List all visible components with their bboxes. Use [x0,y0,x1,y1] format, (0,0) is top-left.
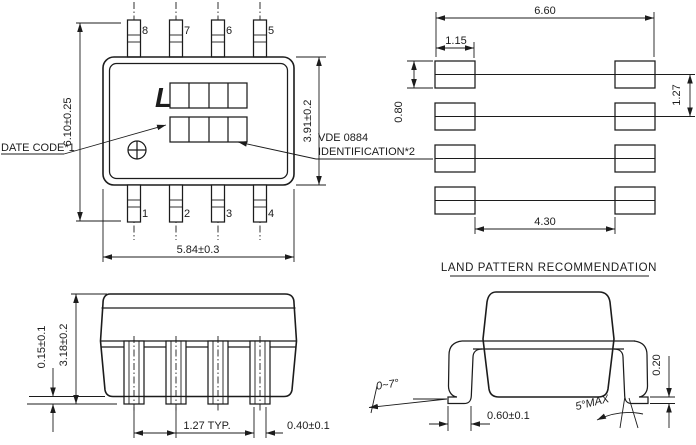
top-view: 8 7 6 5 [1,2,433,262]
side-leg [124,336,144,412]
package-body-outline [103,57,294,185]
side-leg [250,336,270,412]
dim-lead-thickness: 0.20 [650,354,675,428]
marking-row-1 [170,83,247,108]
lead-right [614,341,648,404]
end-view: 0.20 5°MAX 0~7° 0.60±0.1 [369,292,675,431]
lead-left [448,341,482,404]
pin-number: 7 [184,25,190,37]
label-text-line1: VDE 0884 [318,132,368,144]
dim-text: 6.10±0.25 [62,98,74,147]
pins-bottom: 1 2 3 4 [128,185,275,240]
pin-number: 5 [268,25,274,37]
dim-text: 0.20 [651,354,663,375]
svg-text:LAND PATTERN RECOMMENDATION: LAND PATTERN RECOMMENDATION [441,262,657,274]
dim-text: 0.15±0.1 [36,326,48,369]
dim-text: 0.80 [393,101,405,122]
pin-number: 6 [226,25,232,37]
label-text-line2: IDENTIFICATION*2 [318,146,415,158]
side-leg [166,336,186,412]
package-body-inner-outline [110,64,288,179]
pads-right [615,61,655,214]
dim-side-lead-width: 0.40±0.1 [237,407,330,438]
dim-side-angle: 5°MAX [574,393,643,428]
dim-side-pitch: 1.27 TYP. [134,407,240,438]
dim-side-height: 3.18±0.2 [58,294,107,404]
package-outline-drawing: 8 7 6 5 [0,0,696,445]
dim-lead-angle: 0~7° [369,377,447,413]
pin-1: 1 [128,185,149,240]
end-body-outline [483,292,614,397]
pins-top: 8 7 6 5 [128,2,275,57]
label-text: DATE CODE*1 [1,142,75,154]
side-view: 3.18±0.2 0.15±0.1 1.27 TYP. 0.40±0.1 [27,294,330,438]
dim-lead-span: 6.10±0.25 [62,23,121,221]
dim-text: 3.18±0.2 [58,324,70,367]
dim-text: 0~7° [375,377,400,393]
dim-land-inner-span: 4.30 [475,216,615,234]
dim-land-total-width: 6.60 [436,5,654,57]
pin-number: 8 [142,25,148,37]
pin-6: 6 [212,2,233,57]
pin-5: 5 [254,2,275,57]
pin-3: 3 [212,185,233,240]
pin-2: 2 [170,185,191,240]
pads-left [435,61,475,214]
dim-foot-length: 0.60±0.1 [429,406,530,431]
dim-text: 6.60 [534,5,555,17]
land-pattern-view: 6.60 1.15 0.80 1.27 4.30 LAND PATTER [393,5,695,276]
dim-text: 1.27 TYP. [183,420,230,432]
dim-text: 4.30 [534,216,555,228]
dim-text: 5.84±0.3 [177,244,220,256]
dim-text: 0.60±0.1 [487,410,530,422]
dim-side-standoff: 0.15±0.1 [36,326,53,432]
dim-text: 0.40±0.1 [287,420,330,432]
pin-4: 4 [254,185,275,240]
pin-7: 7 [170,2,191,57]
dim-land-pitch: 1.27 [671,75,690,117]
pin-8: 8 [128,2,149,57]
dim-body-height: 3.91±0.2 [296,57,326,185]
vde-identification-label: VDE 0884 IDENTIFICATION*2 [238,132,433,159]
technical-drawing-sheet: 8 7 6 5 [0,0,696,445]
pin-number: 2 [184,208,190,220]
dim-text: 5°MAX [574,393,611,413]
marking-row-2 [170,117,247,142]
pin-number: 4 [268,208,274,220]
dim-text: 1.15 [445,35,466,47]
dim-text: 1.27 [671,84,683,105]
polarity-mark-icon [128,141,146,159]
land-pattern-title: LAND PATTERN RECOMMENDATION [441,262,657,276]
pin-number: 1 [142,208,148,220]
side-leg [208,336,228,412]
dim-land-pad-height: 0.80 [393,61,433,123]
dim-land-pad-width: 1.15 [436,35,474,58]
dim-text: 3.91±0.2 [302,100,314,143]
pin-number: 3 [226,208,232,220]
